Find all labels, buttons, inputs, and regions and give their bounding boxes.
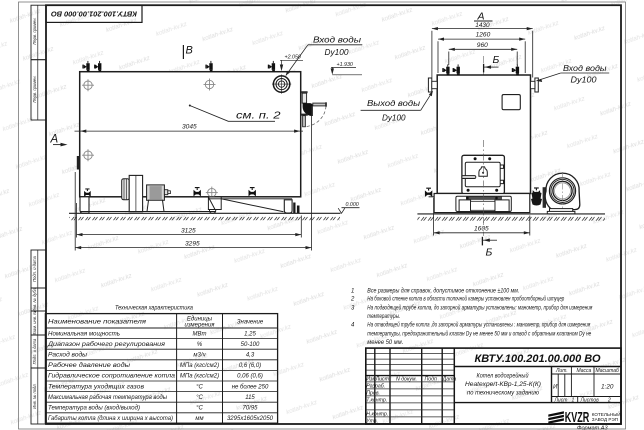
svg-text:см. п. 2: см. п. 2 [236, 110, 281, 122]
svg-text:Б: Б [493, 54, 500, 66]
svg-text:KVZR: KVZR [565, 410, 590, 426]
svg-text:И: И [553, 384, 558, 391]
svg-text:0,6 (6,0): 0,6 (6,0) [239, 363, 261, 369]
svg-text:°С: °С [196, 384, 203, 390]
svg-text:МПа (кгс/см2): МПа (кгс/см2) [180, 374, 219, 380]
svg-text:%: % [197, 342, 203, 348]
svg-text:1: 1 [351, 288, 354, 294]
svg-text:Dy100: Dy100 [571, 76, 598, 85]
svg-text:N докум.: N докум. [396, 376, 417, 382]
svg-text:Разраб.: Разраб. [366, 384, 385, 390]
svg-text:2: 2 [607, 398, 611, 404]
svg-text:50-100: 50-100 [241, 342, 260, 348]
svg-text:°С: °С [196, 395, 203, 401]
svg-text:Подп: Подп [425, 376, 438, 382]
svg-text:ЗАВОД РЭП: ЗАВОД РЭП [592, 417, 618, 422]
svg-text:Инв. № дубл.: Инв. № дубл. [32, 287, 37, 312]
svg-text:1430: 1430 [475, 22, 490, 29]
svg-text:На боковой стенке котла в обла: На боковой стенке котла в области топочн… [367, 296, 564, 303]
svg-text:°С: °С [196, 406, 203, 412]
svg-text:Лист: Лист [554, 398, 568, 404]
svg-text:Листов: Листов [580, 398, 600, 404]
svg-text:3295: 3295 [185, 240, 200, 247]
svg-text:А: А [477, 10, 485, 22]
svg-text:КОТЕЛЬНЫЙ: КОТЕЛЬНЫЙ [592, 410, 621, 417]
svg-text:не более 250: не более 250 [232, 384, 269, 390]
svg-text:3295х1605х2050: 3295х1605х2050 [227, 416, 274, 422]
svg-text:Расход воды: Расход воды [48, 353, 88, 359]
svg-text:температуры, предохранительный: температуры, предохранительный клапан Dу… [367, 330, 592, 337]
svg-text:3125: 3125 [181, 227, 196, 234]
svg-text:На отводящей трубе котла ,до з: На отводящей трубе котла ,до запорной ар… [367, 322, 591, 329]
svg-text:Т.контр.: Т.контр. [366, 398, 387, 404]
svg-text:Перв. примен.: Перв. примен. [32, 17, 37, 44]
svg-text:Выход воды: Выход воды [367, 99, 420, 108]
svg-text:Котел водогрейный: Котел водогрейный [477, 372, 530, 379]
svg-text:Подп. и дата: Подп. и дата [32, 338, 37, 364]
svg-text:Температура воды (вход/выход): Температура воды (вход/выход) [48, 406, 140, 412]
svg-text:Гидравлическое сопротивление к: Гидравлическое сопротивление котла [48, 374, 176, 380]
svg-text:измерения: измерения [184, 323, 215, 329]
svg-text:м3/ч: м3/ч [193, 353, 205, 359]
svg-text:1:20: 1:20 [601, 384, 614, 391]
svg-text:4,3: 4,3 [246, 353, 255, 359]
svg-text:Масса: Масса [577, 368, 592, 374]
svg-text:Максимальная рабочая температу: Максимальная рабочая температура воды [48, 395, 168, 401]
svg-text:Наименование показателя: Наименование показателя [48, 320, 147, 326]
svg-text:мм: мм [195, 416, 203, 422]
svg-text:2: 2 [350, 297, 355, 303]
svg-text:по техническому заданию: по техническому заданию [467, 391, 539, 397]
svg-text:КВТУ.100.201.00.000 ВО: КВТУ.100.201.00.000 ВО [51, 9, 137, 18]
svg-text:температуры.: температуры. [367, 314, 400, 320]
svg-text:Номинальная мощность: Номинальная мощность [48, 331, 120, 337]
svg-text:Лист: Лист [375, 376, 390, 382]
svg-text:Dy100: Dy100 [382, 114, 406, 123]
svg-text:+1.930: +1.930 [337, 62, 353, 68]
svg-text:Утв.: Утв. [366, 419, 378, 425]
svg-text:Б: Б [486, 247, 493, 259]
svg-text:Вход воды: Вход воды [313, 36, 361, 45]
svg-text:Dy100: Dy100 [325, 48, 350, 57]
svg-text:960: 960 [477, 42, 488, 49]
svg-text:Габариты котла (длина х ширина: Габариты котла (длина х ширина х высота) [48, 416, 173, 422]
svg-text:1260: 1260 [476, 32, 491, 39]
svg-text:0.000: 0.000 [346, 202, 359, 208]
svg-text:Значение: Значение [237, 320, 264, 326]
svg-text:Перв. примен.: Перв. примен. [32, 75, 37, 102]
svg-text:В: В [186, 45, 193, 57]
svg-text:Heatexpert-КВр-1,25-К(К): Heatexpert-КВр-1,25-К(К) [465, 382, 541, 388]
svg-text:Формат А3: Формат А3 [577, 425, 608, 430]
svg-text:менее 50 мм.: менее 50 мм. [367, 340, 403, 346]
svg-text:70/95: 70/95 [242, 406, 258, 412]
svg-text:Масштаб: Масштаб [596, 368, 620, 374]
svg-text:Диапазон рабочего регулировани: Диапазон рабочего регулирования [47, 342, 166, 348]
svg-text:Дата: Дата [442, 376, 457, 382]
svg-text:115: 115 [245, 395, 255, 401]
svg-text:На подводящей трубе котла, до: На подводящей трубе котла, до запорной а… [367, 304, 593, 311]
svg-text:Техническая характеристика: Техническая характеристика [115, 305, 193, 312]
svg-text:А: А [50, 134, 59, 146]
svg-text:Подп. и дата: Подп. и дата [32, 255, 37, 281]
svg-text:КВТУ.100.201.00.000 ВО: КВТУ.100.201.00.000 ВО [475, 353, 602, 365]
svg-text:Температура уходящих газов: Температура уходящих газов [48, 384, 144, 390]
svg-text:Н.контр.: Н.контр. [366, 412, 388, 418]
svg-text:Рабочее давление воды: Рабочее давление воды [48, 363, 131, 369]
svg-text:Пров.: Пров. [366, 391, 380, 397]
svg-text:Все размеры для справок, допус: Все размеры для справок, допустимое откл… [367, 288, 519, 294]
svg-text:Лит.: Лит. [555, 368, 568, 374]
svg-text:Взам. инв. №: Взам. инв. № [32, 310, 37, 336]
svg-text:1605: 1605 [474, 225, 489, 232]
svg-text:0,06 (0,6): 0,06 (0,6) [237, 374, 263, 380]
svg-text:МВт: МВт [193, 331, 207, 337]
svg-text:МПа (кгс/см2): МПа (кгс/см2) [180, 363, 219, 369]
svg-text:Инв. № подл.: Инв. № подл. [32, 383, 37, 408]
svg-text:3045: 3045 [182, 124, 197, 131]
svg-text:Вход воды: Вход воды [563, 64, 607, 73]
svg-text:1,25: 1,25 [244, 331, 256, 337]
svg-text:1: 1 [572, 398, 575, 404]
